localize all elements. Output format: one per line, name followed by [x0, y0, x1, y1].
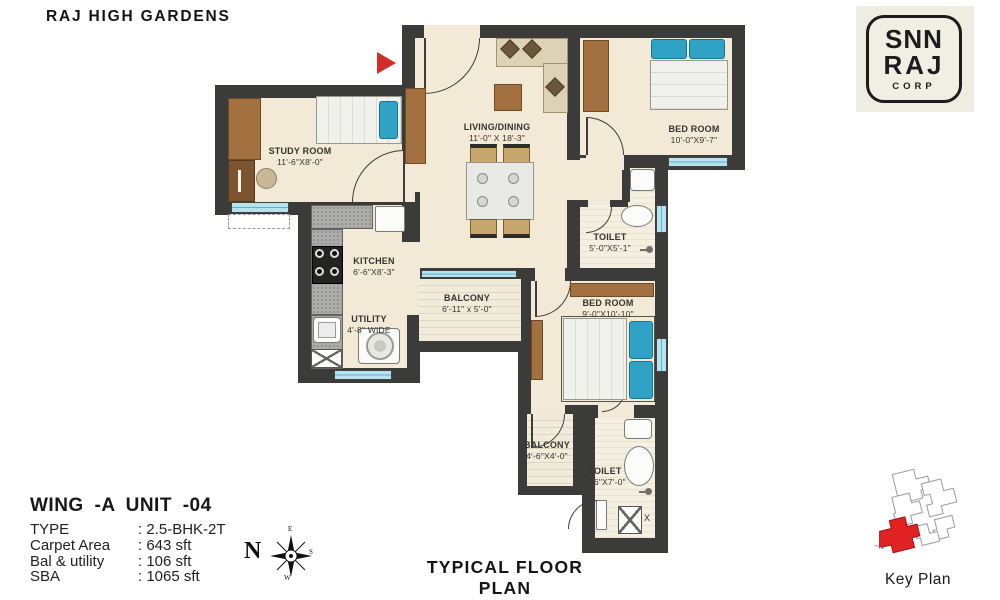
washing-machine-drum-center [374, 340, 386, 352]
room-dims: 4'-6"X7'-0" [584, 477, 626, 488]
stove-burner [330, 249, 339, 258]
bedroom2-window [656, 338, 667, 372]
unit-info-row: SBA: 1065 sft [30, 569, 226, 585]
room-dims: 11'-6"X8'-0" [269, 157, 332, 168]
plan-caption: TYPICAL FLOOR PLAN [398, 557, 612, 599]
room-dims: 5'-0"X5'-1" [589, 243, 631, 254]
room-name: UTILITY [351, 314, 386, 324]
study-window [231, 202, 289, 213]
unit-info-heading: WING -A UNIT -04 [30, 495, 226, 517]
room-name: BALCONY [524, 440, 570, 450]
unit-info: WING -A UNIT -04 TYPE: 2.5-BHK-2T Carpet… [30, 495, 226, 585]
utility-sink-basin [318, 322, 336, 338]
room-name: TOILET [588, 466, 621, 476]
study-ledge [228, 214, 290, 229]
info-sep: : [138, 553, 142, 570]
hall-opening [567, 160, 580, 200]
room-label-bedroom1: BED ROOM 10'-0"X9'-7" [668, 124, 719, 146]
bedroom2-wardrobe [570, 283, 654, 297]
compass-north-label: N [244, 538, 261, 565]
toilet1-sink [630, 169, 655, 191]
bedroom2-pillow [629, 361, 653, 399]
dining-plate [508, 173, 519, 184]
entrance-arrow-icon [377, 52, 396, 74]
foyer-cabinet [405, 88, 426, 164]
room-dims: 9'-0"X10'-10" [582, 309, 634, 320]
unit-info-row: Bal & utility: 106 sft [30, 554, 226, 570]
kitchen-counter-top [311, 205, 373, 229]
balcony1-slider [421, 270, 517, 278]
info-sep: : [138, 521, 142, 538]
toilet2-door-arc [568, 500, 597, 529]
bedroom2-pillow [629, 321, 653, 359]
fridge [375, 206, 405, 232]
study-chair [256, 168, 277, 189]
compass-south-label: S [309, 548, 313, 556]
toilet1-wc [621, 205, 653, 227]
room-dims: 4'-6"X4'-0" [524, 451, 570, 462]
study-desk [228, 160, 255, 202]
utility-window [334, 370, 392, 380]
info-value: 106 sft [146, 553, 191, 570]
room-label-toilet2: TOILET 4'-6"X7'-0" [584, 466, 626, 488]
toilet2-wc [624, 446, 654, 486]
room-label-living-dining: LIVING/DINING 11'-0" X 18'-3" [464, 122, 531, 144]
room-name: BALCONY [444, 293, 490, 303]
wall [580, 200, 588, 207]
unit-info-row: TYPE: 2.5-BHK-2T [30, 522, 226, 538]
coffee-table [494, 84, 522, 111]
shower-icon [645, 488, 652, 495]
entrance-opening [424, 25, 480, 38]
dining-chair [503, 219, 530, 238]
bedroom2-bed [563, 318, 627, 400]
info-label: TYPE [30, 522, 138, 538]
bedroom1-bed [650, 60, 728, 110]
info-value: 1065 sft [146, 568, 199, 585]
key-plan-map [858, 452, 974, 570]
bedroom1-window [668, 157, 728, 167]
unit-info-row: Carpet Area: 643 sft [30, 538, 226, 554]
logo: SNN RAJ CORP [866, 15, 962, 103]
room-name: LIVING/DINING [464, 122, 531, 132]
study-desk-top [238, 170, 241, 192]
wall [610, 200, 628, 207]
key-plan-label: Key Plan [866, 571, 970, 589]
stove-burner [315, 267, 324, 276]
info-value: 2.5-BHK-2T [146, 521, 225, 538]
bedroom2-tv-unit [531, 320, 543, 380]
room-label-balcony2: BALCONY 4'-6"X4'-0" [524, 440, 570, 462]
logo-text-corp: CORP [869, 81, 959, 92]
room-label-study: STUDY ROOM 11'-6"X8'-0" [269, 146, 332, 168]
utility-shaft [311, 349, 342, 368]
dining-plate [477, 196, 488, 207]
toilet2-shaft [618, 506, 642, 534]
dining-plate [477, 173, 488, 184]
compass-west-label: W [284, 574, 291, 582]
room-name: TOILET [593, 232, 626, 242]
bedroom1-wardrobe [583, 40, 609, 112]
bedroom1-door-opening [586, 155, 624, 170]
info-label: Carpet Area [30, 538, 138, 554]
stove-burner [330, 267, 339, 276]
room-label-kitchen: KITCHEN 6'-6"X8'-3" [353, 256, 395, 278]
room-label-utility: UTILITY 4'-8" WIDE [347, 314, 390, 336]
info-sep: : [138, 568, 142, 585]
balcony2-door-opening [531, 405, 565, 414]
north-compass-icon [268, 533, 314, 579]
room-dims: 6'-11" x 5'-0" [442, 304, 492, 315]
room-label-toilet1: TOILET 5'-0"X5'-1" [589, 232, 631, 254]
compass-east-label: E [288, 525, 292, 533]
dining-chair [470, 144, 497, 163]
dining-table [466, 162, 534, 220]
dining-chair [503, 144, 530, 163]
info-label: SBA [30, 569, 138, 585]
info-sep: : [138, 537, 142, 554]
study-wardrobe [228, 98, 261, 160]
shower-icon [646, 246, 653, 253]
dining-chair [470, 219, 497, 238]
bedroom1-pillow [651, 39, 687, 59]
project-title: RAJ HIGH GARDENS [46, 8, 231, 26]
toilet1-window [656, 205, 667, 233]
room-name: KITCHEN [353, 256, 394, 266]
toilet2-door-leaf [596, 500, 607, 530]
room-name: BED ROOM [582, 298, 633, 308]
room-dims: 4'-8" WIDE [347, 325, 390, 336]
logo-text-snn: SNN [869, 26, 959, 52]
bedroom2-door-opening [535, 268, 565, 281]
stove-burner [315, 249, 324, 258]
room-label-bedroom2: BED ROOM 9'-0"X10'-10" [582, 298, 634, 320]
info-value: 643 sft [146, 537, 191, 554]
study-bed-pillow [379, 101, 398, 139]
floor-plan-page: RAJ HIGH GARDENS SNN RAJ CORP [0, 0, 1000, 600]
room-name: BED ROOM [668, 124, 719, 134]
room-label-balcony1: BALCONY 6'-11" x 5'-0" [442, 293, 492, 315]
room-name: STUDY ROOM [269, 146, 332, 156]
room-dims: 11'-0" X 18'-3" [464, 133, 531, 144]
room-dims: 6'-6"X8'-3" [353, 267, 395, 278]
info-label: Bal & utility [30, 554, 138, 570]
room-dims: 10'-0"X9'-7" [668, 135, 719, 146]
logo-text-raj: RAJ [869, 52, 959, 78]
bedroom1-pillow [689, 39, 725, 59]
shaft-label: X [644, 513, 650, 523]
toilet2-sink [624, 419, 652, 439]
dining-plate [508, 196, 519, 207]
